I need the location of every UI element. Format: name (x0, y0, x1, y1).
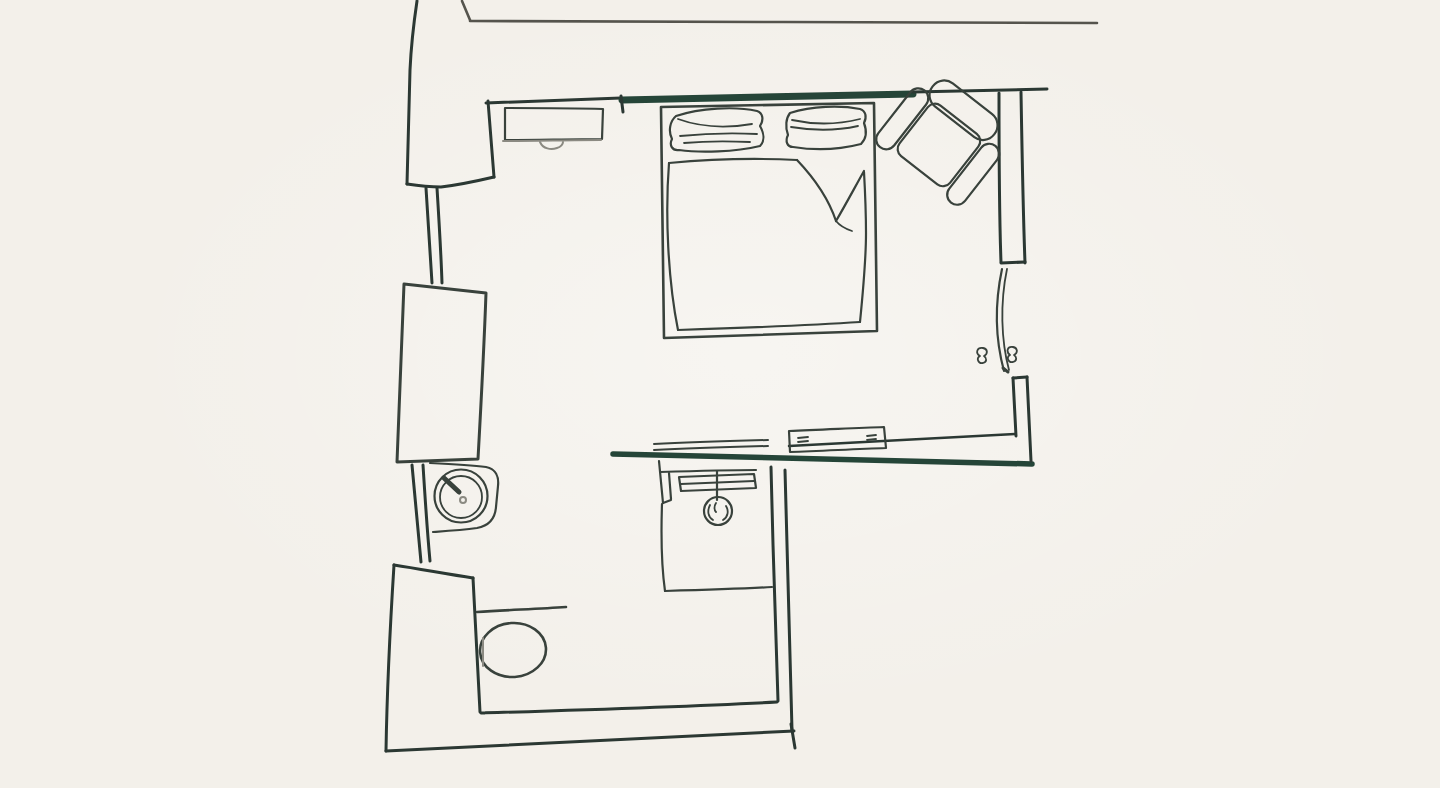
sink-faucet-icon (444, 478, 459, 492)
duvet-left-edge (667, 163, 678, 330)
neighbor-wall-line (470, 21, 1097, 23)
wall-divider-upper (789, 434, 1015, 446)
neighbor-structure (462, 1, 1097, 23)
pillow-left-crease-1 (678, 119, 752, 127)
armchair (872, 66, 1017, 209)
bed (661, 103, 877, 338)
radiator (789, 427, 886, 452)
wall-headboard-bar (622, 94, 913, 100)
desk-front-line (503, 140, 601, 141)
toilet-tank-line (477, 607, 566, 612)
towel-bar-line-1 (654, 440, 768, 444)
pillow-right-crease-2 (791, 126, 858, 130)
radiator-tick-right-2 (867, 439, 876, 440)
shower-head-scribble-1 (708, 505, 713, 520)
walls (386, 1, 1047, 751)
wall-divider-thick (613, 454, 1032, 464)
floor-plan-canvas: Hand-drawn floor plan sketch of a bedroo… (0, 0, 1440, 788)
door-handle-right-icon (1008, 347, 1017, 362)
wall-left-mid-b (423, 465, 430, 561)
duvet-bottom-edge (678, 322, 860, 330)
entry-door (977, 269, 1017, 372)
desk-handle (540, 142, 563, 149)
wall-left-top (407, 1, 417, 184)
wall-jamb-outer (1027, 377, 1031, 461)
floor-plan-sketch: Hand-drawn floor plan sketch of a bedroo… (0, 0, 1440, 788)
wall-right-connector (1001, 262, 1025, 263)
shower-jamb-outer (659, 461, 663, 503)
wall-bottom-inner (481, 702, 777, 713)
wardrobe (397, 284, 486, 462)
armchair-back (924, 75, 1003, 146)
desk (503, 108, 603, 149)
radiator-tick-left-1 (798, 437, 808, 438)
toilet-bowl (478, 621, 548, 679)
duvet-fold-tail (836, 221, 852, 231)
shower-jamb-inner (669, 473, 671, 499)
neighbor-wall-stub (462, 1, 470, 20)
shower-tray-left (661, 504, 665, 591)
radiator-tick-left-2 (798, 441, 808, 442)
wall-bottom-outer (386, 731, 794, 751)
duvet-top-edge (669, 159, 797, 163)
wall-right-inner (999, 93, 1001, 262)
wardrobe-outline (397, 284, 486, 462)
sink (430, 463, 498, 532)
duvet-fold-crease-left (797, 160, 836, 221)
wall-headboard-endcap (621, 96, 623, 112)
wall-pillar-right (488, 101, 494, 177)
shower-jamb-bottom (663, 500, 671, 503)
pillow-right (786, 107, 865, 149)
towel-bar (654, 440, 768, 450)
wall-jamb-inner (1013, 378, 1016, 436)
wall-left-upper-b (437, 188, 442, 283)
wall-bl-right (473, 578, 480, 712)
shower-tray-bottom (665, 587, 772, 591)
pillow-left-crease-2 (680, 133, 757, 136)
radiator-tick-right-1 (867, 435, 876, 436)
wall-pillar-bottom (407, 177, 494, 187)
shower-top-line (660, 470, 756, 472)
shower (659, 461, 772, 591)
towel-bar-line-2 (654, 446, 768, 450)
pillow-left-outline (670, 108, 763, 151)
pillow-left (670, 108, 763, 151)
wall-jamb-top (1013, 377, 1027, 378)
wall-bath-right-outer (785, 470, 792, 730)
wall-right-outer (1021, 92, 1025, 263)
armchair-seat (894, 100, 984, 190)
shower-head-scribble-2 (723, 506, 728, 520)
wall-bl-top (394, 565, 473, 578)
wall-left-mid-a (412, 465, 421, 562)
sink-drain-dot (460, 497, 466, 503)
pillow-right-crease-1 (792, 119, 860, 123)
duvet (667, 159, 866, 330)
armchair-arm-right (943, 140, 1003, 209)
wall-left-upper-a (426, 188, 432, 283)
shower-head-scribble-3 (715, 503, 717, 512)
duvet-fold-crease-right (836, 171, 864, 221)
bed-frame (661, 103, 877, 338)
desk-outline (505, 108, 603, 140)
toilet (477, 607, 566, 679)
door-leaf-edge (1002, 269, 1009, 370)
wall-bl-left (386, 565, 394, 751)
wall-bath-right-inner (771, 467, 778, 701)
wall-top-left (486, 98, 621, 103)
duvet-right-edge (860, 172, 866, 322)
door-handle-left-icon (977, 348, 987, 363)
wall-top-right (913, 89, 1047, 92)
pillow-left-crease-3 (684, 141, 750, 143)
